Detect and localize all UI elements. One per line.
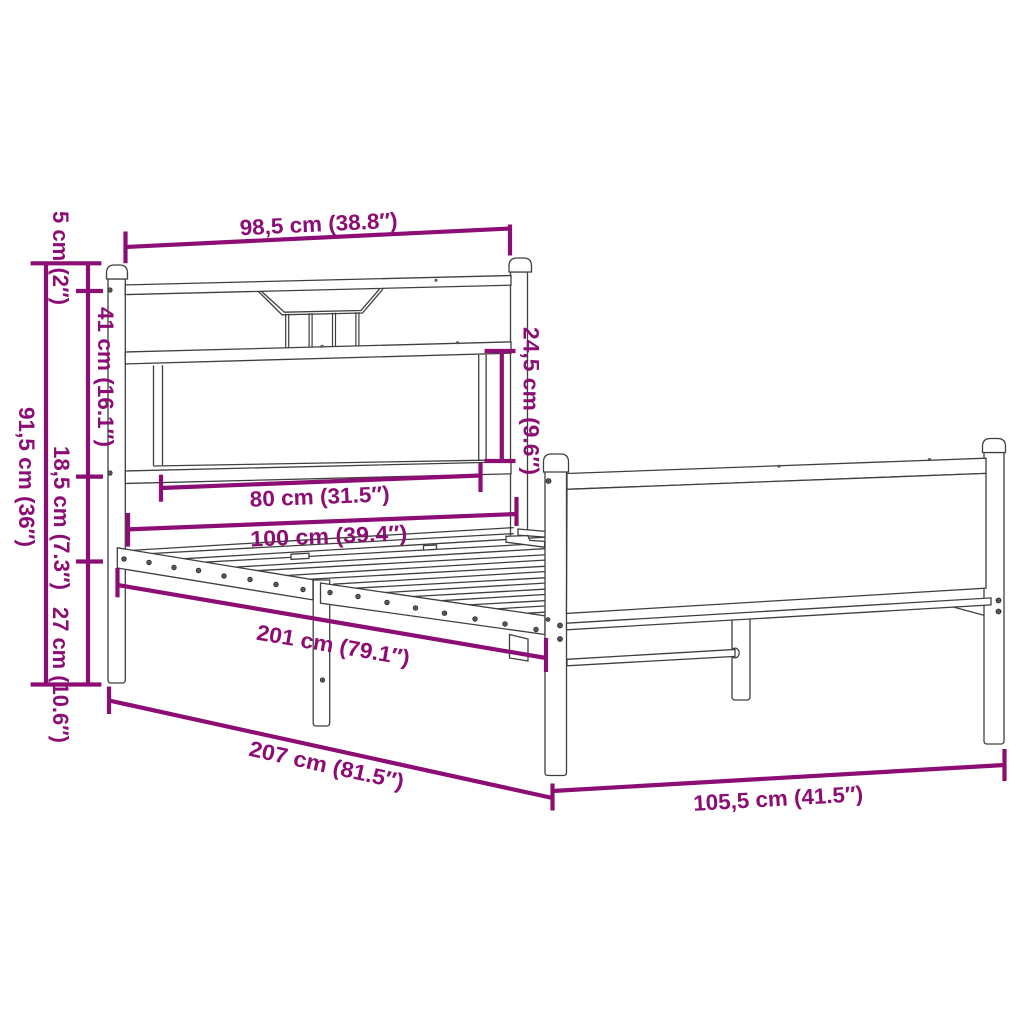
svg-text:27 cm (10.6″): 27 cm (10.6″) [48, 607, 73, 743]
svg-text:91,5 cm (36″): 91,5 cm (36″) [14, 407, 39, 547]
svg-text:5 cm (2″): 5 cm (2″) [48, 211, 73, 305]
svg-text:41 cm (16.1″): 41 cm (16.1″) [93, 307, 118, 447]
svg-text:18,5 cm (7.3″): 18,5 cm (7.3″) [49, 446, 74, 590]
svg-text:24,5 cm (9.6″): 24,5 cm (9.6″) [518, 327, 543, 475]
